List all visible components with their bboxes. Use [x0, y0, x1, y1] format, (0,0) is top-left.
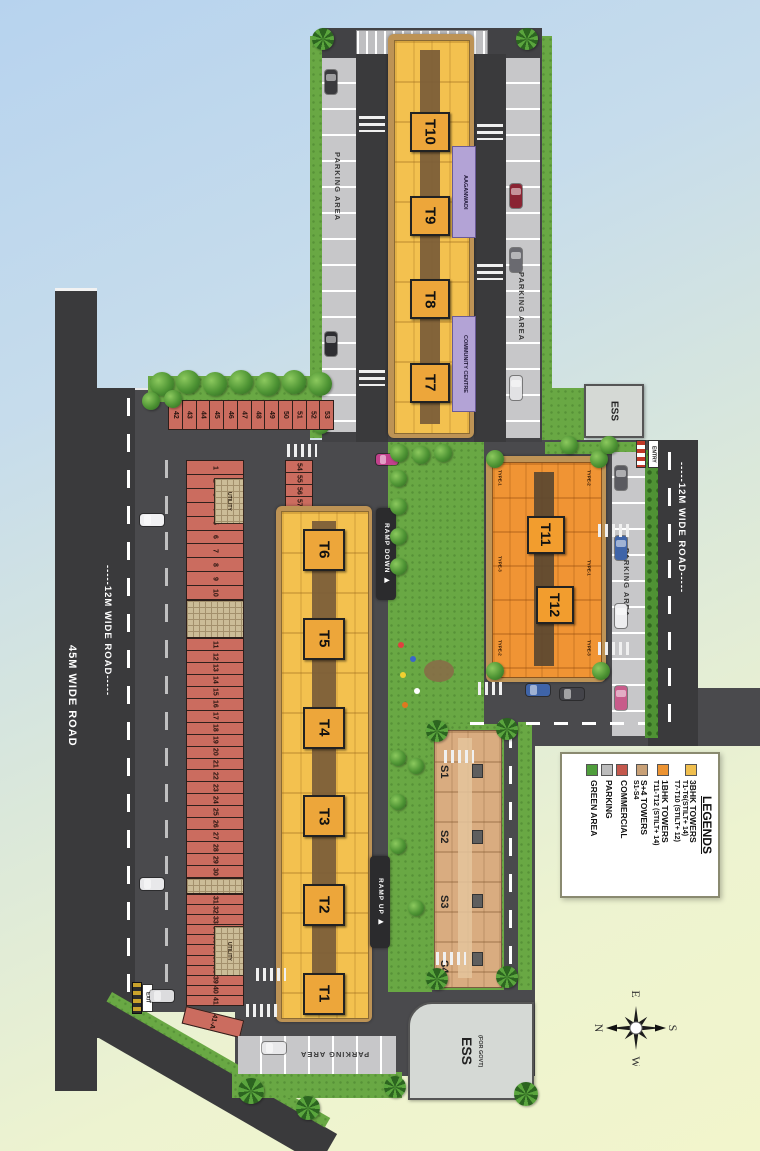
ramp-down: RAMP DOWN ▶ [376, 508, 396, 600]
ess-govt-box: ESS (FOR GOVT) [408, 1002, 534, 1100]
playground-equipment [402, 702, 408, 708]
tree [592, 662, 610, 680]
car [150, 990, 174, 1002]
crosswalk [598, 642, 632, 655]
commercial-unit: 27 [187, 830, 243, 842]
unit-type-label: TYPE-2 [497, 640, 502, 656]
commercial-unit: 40 [187, 986, 243, 996]
legend-item: COMMERCIAL [616, 758, 628, 892]
car [510, 376, 522, 400]
crosswalk [287, 444, 317, 457]
dashes-s-road [509, 730, 512, 980]
commercial-unit: 49 [265, 401, 279, 429]
commercial-unit: 47 [238, 401, 252, 429]
playground-equipment [410, 656, 416, 662]
crosswalk [598, 524, 632, 537]
car [325, 332, 337, 356]
compass-arrow-s [655, 1025, 666, 1032]
road-12m-right-label: -----12M WIDE ROAD----- [676, 462, 687, 593]
tower-label: T8 [410, 279, 450, 319]
top-block-road-right [474, 54, 506, 442]
legend-item: S+4 TOWERSS1-S4 [631, 758, 648, 892]
ramp-up: RAMP UP ▶ [370, 856, 390, 948]
compass-n: N [594, 1024, 606, 1033]
palm-tree [516, 28, 538, 50]
legend-swatch [636, 764, 648, 776]
crosswalk [359, 370, 385, 386]
sandpit [424, 660, 454, 682]
aganwadi-label: AAGANWADI [461, 175, 467, 210]
parking-area-label-bottom: PARKING AREA [300, 1050, 369, 1059]
unit-type-label: TYPE-3 [497, 556, 502, 572]
s-tower-label: S2 [438, 822, 460, 852]
legend-swatch [657, 764, 669, 776]
commercial-unit: 52 [307, 401, 321, 429]
ess-govt-label: ESS [459, 1037, 475, 1065]
legend-item: GREEN AREA [586, 758, 598, 892]
tree [390, 528, 407, 545]
ess-govt-sublabel: (FOR GOVT) [477, 1035, 483, 1067]
green-s-right [518, 722, 532, 990]
compass-s: S [666, 1025, 678, 1032]
palm-tree [238, 1078, 264, 1104]
palm-tree [296, 1096, 320, 1120]
t11-t12-spine [534, 472, 554, 666]
green-mid-column [388, 746, 432, 992]
tree [390, 794, 406, 810]
commercial-unit: 55 [286, 473, 312, 485]
tower-label: T5 [303, 618, 345, 660]
legend-item-text: S+4 TOWERSS1-S4 [631, 780, 648, 835]
commercial-unit: 10 [187, 586, 243, 599]
tree [486, 662, 504, 680]
rooftop-unit [472, 952, 483, 966]
car [615, 604, 627, 628]
tree [600, 436, 618, 454]
tree [282, 370, 306, 394]
tree [390, 444, 408, 462]
commercial-unit: 11 [187, 639, 243, 651]
s-tower-labels: S1S2S3S4 [438, 757, 460, 982]
commercial-unit: 8 [187, 558, 243, 572]
commercial-unit: 39 [187, 976, 243, 986]
tree [256, 372, 280, 396]
legend-swatch [685, 764, 697, 776]
tree [229, 370, 253, 394]
utility-label: UTILITY [226, 942, 232, 961]
utility-block: UTILITY [214, 478, 244, 524]
commercial-unit: 43 [183, 401, 197, 429]
entry-gate-barrier [636, 440, 646, 468]
palm-tree [384, 1076, 406, 1098]
crosswalk [444, 750, 474, 763]
road-12m-left-label: -----12M WIDE ROAD----- [102, 565, 113, 696]
commercial-unit: 6 [187, 531, 243, 545]
tree [486, 450, 504, 468]
compass-hub [630, 1022, 642, 1034]
commercial-unit: 19 [187, 735, 243, 747]
tree [408, 758, 424, 774]
tree [560, 436, 578, 454]
parking-area-label-top-right: PARKING AREA [517, 272, 526, 341]
tree [390, 498, 407, 515]
tower-label: T9 [410, 196, 450, 236]
commercial-unit: 1 [187, 461, 243, 475]
commercial-unit: 16 [187, 699, 243, 711]
green-ess-patch [548, 388, 584, 440]
playground-equipment [414, 688, 420, 694]
commercial-strip-top: 424344454647484950515253 [168, 400, 334, 430]
commercial-unit: 50 [279, 401, 293, 429]
palm-tree [312, 28, 334, 50]
legend-content: LEGENDS 3BHK TOWERST1-T6(STILT+ 14)T7-T1… [565, 758, 715, 892]
top-tower-labels: T10T9T8T7 [410, 112, 446, 403]
aganwadi-block: AAGANWADI [452, 146, 476, 238]
palm-tree [514, 1082, 538, 1106]
legend-item: 3BHK TOWERST1-T6(STILT+ 14)T7-T10 (STILT… [672, 758, 697, 892]
commercial-unit: 56 [286, 485, 312, 497]
crosswalk [477, 264, 503, 280]
rooftop-unit [472, 830, 483, 844]
commercial-unit: 17 [187, 711, 243, 723]
commercial-unit: 14 [187, 675, 243, 687]
commercial-unit: 26 [187, 818, 243, 830]
tower-label: T3 [303, 795, 345, 837]
car [325, 70, 337, 94]
tree [390, 750, 406, 766]
palm-tree [426, 968, 448, 990]
utility-hatch-block [186, 600, 244, 638]
legend-item: PARKING [601, 758, 613, 892]
entry-gate: ENTRY [648, 440, 659, 468]
car [615, 686, 627, 710]
legend: LEGENDS 3BHK TOWERST1-T6(STILT+ 14)T7-T1… [560, 752, 720, 898]
commercial-unit: 7 [187, 544, 243, 558]
community-centre-block: COMMUNITY CENTRE [452, 316, 476, 412]
compass-e: E [629, 990, 643, 997]
car [510, 184, 522, 208]
commercial-unit: 9 [187, 572, 243, 586]
commercial-strip-11-30: 1112131415161718192021222324252627282930 [186, 638, 244, 878]
commercial-unit: 12 [187, 651, 243, 663]
unit-type-label: TYPE-1 [586, 560, 591, 576]
commercial-unit: 15 [187, 687, 243, 699]
lane-dashes-interior [165, 460, 168, 1000]
legend-item-text: 3BHK TOWERST1-T6(STILT+ 14)T7-T10 (STILT… [672, 780, 697, 843]
tree [412, 446, 430, 464]
commercial-unit: 45 [210, 401, 224, 429]
legend-items: 3BHK TOWERST1-T6(STILT+ 14)T7-T10 (STILT… [586, 758, 697, 892]
tower-label-t11: T11 [527, 516, 565, 554]
exit-gate-barrier [132, 982, 142, 1014]
commercial-unit: 48 [252, 401, 266, 429]
tower-label: T6 [303, 529, 345, 571]
car [262, 1042, 286, 1054]
tower-label: T2 [303, 884, 345, 926]
tree [390, 838, 406, 854]
ess-top-box: ESS [584, 384, 644, 438]
parking-area-label-top-left: PARKING AREA [333, 152, 342, 221]
rooftop-unit [472, 764, 483, 778]
tree [164, 390, 182, 408]
commercial-unit: 29 [187, 854, 243, 866]
main-tower-labels: T6T5T4T3T2T1 [303, 529, 341, 1015]
commercial-unit: 33 [187, 915, 243, 925]
unit-type-label: TYPE-1 [497, 470, 502, 486]
utility-block: UTILITY [214, 926, 244, 976]
commercial-unit: 46 [224, 401, 238, 429]
utility-label: UTILITY [226, 492, 232, 511]
car [560, 688, 584, 700]
lane-dashes-left [127, 398, 130, 1024]
tower-label-t12: T12 [536, 586, 574, 624]
crosswalk [478, 682, 504, 695]
commercial-unit: 54 [286, 461, 312, 473]
tower-label: T7 [410, 363, 450, 403]
tree [408, 900, 424, 916]
tree [390, 470, 407, 487]
community-centre-label: COMMUNITY CENTRE [461, 335, 467, 393]
utility-hatch-block [186, 878, 244, 894]
lane-dashes-right [668, 452, 671, 734]
car [526, 684, 550, 696]
tower-label: T10 [410, 112, 450, 152]
legend-swatch [601, 764, 613, 776]
palm-tree [426, 720, 448, 742]
compass-rose: E N S W [594, 982, 678, 1066]
car [510, 248, 522, 272]
compass-arrow-n [606, 1025, 617, 1032]
crosswalk [256, 968, 286, 981]
legend-item-text: PARKING [603, 780, 612, 819]
commercial-unit: 13 [187, 663, 243, 675]
commercial-unit: 30 [187, 866, 243, 877]
legend-item-text: COMMERCIAL [618, 780, 627, 839]
s-block-spine [458, 738, 472, 978]
tree [390, 558, 407, 575]
road-45m-label: 45M WIDE ROAD [66, 645, 78, 747]
legend-item-text: GREEN AREA [588, 780, 597, 836]
commercial-unit: 31 [187, 895, 243, 905]
legend-item: 1BHK TOWERST11-T12 (STILT+ 14) [651, 758, 668, 892]
commercial-unit: 25 [187, 806, 243, 818]
commercial-unit: 44 [197, 401, 211, 429]
tree [308, 372, 332, 396]
tree [434, 444, 452, 462]
hedge-right [645, 450, 658, 738]
commercial-unit: 24 [187, 794, 243, 806]
tree [203, 372, 227, 396]
tower-label: T1 [303, 973, 345, 1015]
car [615, 536, 627, 560]
commercial-unit: 32 [187, 905, 243, 915]
commercial-unit: 22 [187, 770, 243, 782]
commercial-unit: 51 [293, 401, 307, 429]
crosswalk [436, 952, 466, 965]
legend-title: LEGENDS [700, 758, 714, 892]
crosswalk [246, 1004, 280, 1017]
compass-w: W [629, 1056, 643, 1066]
commercial-unit: 53 [320, 401, 333, 429]
commercial-unit: 41 [187, 996, 243, 1005]
tree [142, 392, 160, 410]
commercial-unit: 21 [187, 759, 243, 771]
road-stub-right [698, 688, 760, 746]
road-12m-left [97, 388, 139, 1038]
playground-equipment [398, 642, 404, 648]
commercial-unit: 28 [187, 842, 243, 854]
car [615, 466, 627, 490]
rooftop-unit [472, 894, 483, 908]
palm-tree [496, 966, 518, 988]
legend-swatch [616, 764, 628, 776]
crosswalk [359, 116, 385, 132]
legend-swatch [586, 764, 598, 776]
unit-type-label: TYPE-2 [586, 470, 591, 486]
site-master-plan: 45M WIDE ROAD -----12M WIDE ROAD----- --… [0, 0, 760, 1151]
legend-item-text: 1BHK TOWERST11-T12 (STILT+ 14) [651, 780, 668, 845]
playground-equipment [400, 672, 406, 678]
commercial-unit: 20 [187, 747, 243, 759]
crosswalk [477, 124, 503, 140]
commercial-unit: 23 [187, 782, 243, 794]
palm-tree [496, 718, 518, 740]
car [140, 514, 164, 526]
s-tower-label: S3 [438, 887, 460, 917]
car [140, 878, 164, 890]
commercial-unit: 18 [187, 723, 243, 735]
tower-label: T4 [303, 707, 345, 749]
tree [176, 370, 200, 394]
unit-type-label: TYPE-3 [586, 640, 591, 656]
ess-top-label: ESS [609, 401, 620, 421]
